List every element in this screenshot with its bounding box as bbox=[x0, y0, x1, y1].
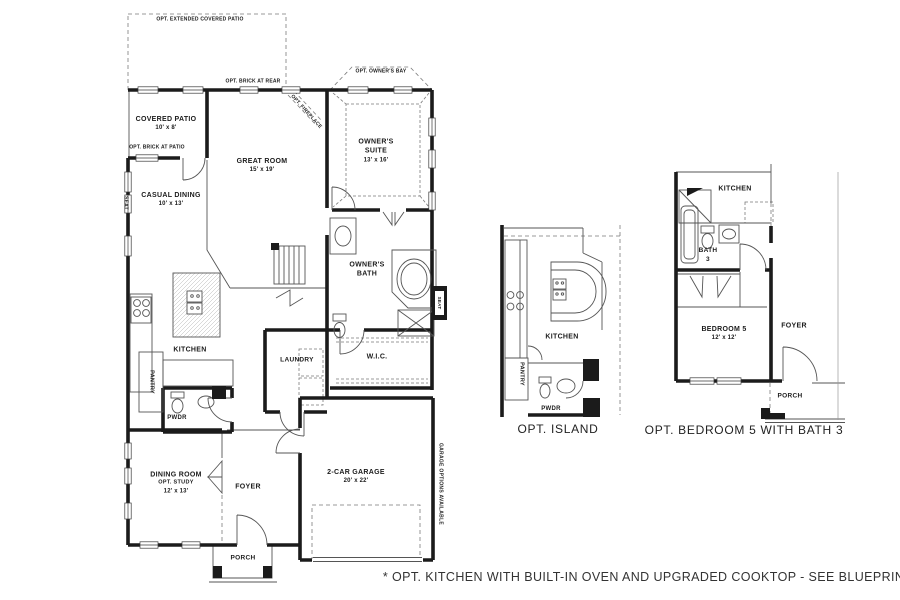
footnote: * OPT. KITCHEN WITH BUILT-IN OVEN AND UP… bbox=[383, 570, 900, 584]
island-powder-label: PWDR bbox=[541, 405, 561, 413]
bath3-label: BATH3 bbox=[699, 247, 718, 265]
window-seat-label: SEAT bbox=[122, 196, 129, 210]
bedroom5-label: BEDROOM 512' x 12' bbox=[701, 325, 746, 343]
bed5-porch-label: PORCH bbox=[778, 393, 803, 402]
opt-bedroom5-caption: OPT. BEDROOM 5 WITH BATH 3 bbox=[645, 423, 844, 437]
wic-label: W.I.C. bbox=[367, 352, 388, 361]
pantry-label: PANTRY bbox=[147, 370, 154, 394]
foyer-label: FOYER bbox=[235, 482, 261, 491]
casual-dining-label: CASUAL DINING10' x 13' bbox=[141, 191, 200, 209]
bed5-kitchen-label: KITCHEN bbox=[718, 184, 751, 193]
great-room-label: GREAT ROOM15' x 19' bbox=[237, 157, 288, 175]
opt-brick-rear-label: OPT. BRICK AT REAR bbox=[226, 79, 281, 86]
owners-suite-label: OWNER'SSUITE13' x 16' bbox=[358, 138, 393, 165]
floor-plan-sheet: OPT. EXTENDED COVERED PATIO OPT. BRICK A… bbox=[0, 0, 900, 600]
owners-bath-label: OWNER'SBATH bbox=[349, 261, 384, 280]
island-kitchen-label: KITCHEN bbox=[545, 332, 578, 341]
kitchen-label: KITCHEN bbox=[173, 345, 206, 354]
porch-label: PORCH bbox=[231, 555, 256, 564]
powder-room-label: PWDR bbox=[167, 414, 187, 422]
opt-island-caption: OPT. ISLAND bbox=[517, 422, 598, 436]
opt-extended-patio-label: OPT. EXTENDED COVERED PATIO bbox=[156, 17, 243, 24]
bed5-foyer-label: FOYER bbox=[781, 321, 807, 330]
shower-seat-label: SEAT bbox=[436, 297, 442, 310]
island-pantry-label: PANTRY bbox=[517, 362, 524, 386]
garage-label: 2-CAR GARAGE20' x 22' bbox=[327, 468, 385, 486]
garage-options-note: GARAGE OPTIONS AVAILABLE bbox=[437, 443, 444, 525]
fixtures bbox=[130, 158, 817, 564]
dining-room-label: DINING ROOMOPT. STUDY12' x 13' bbox=[150, 471, 202, 496]
laundry-label: LAUNDRY bbox=[280, 357, 314, 366]
opt-brick-patio-label: OPT. BRICK AT PATIO bbox=[129, 145, 185, 152]
opt-owners-bay-label: OPT. OWNER'S BAY bbox=[356, 69, 407, 76]
walls bbox=[128, 90, 782, 560]
floorplan-linework bbox=[0, 0, 900, 600]
covered-patio-label: COVERED PATIO10' x 8' bbox=[136, 115, 197, 133]
